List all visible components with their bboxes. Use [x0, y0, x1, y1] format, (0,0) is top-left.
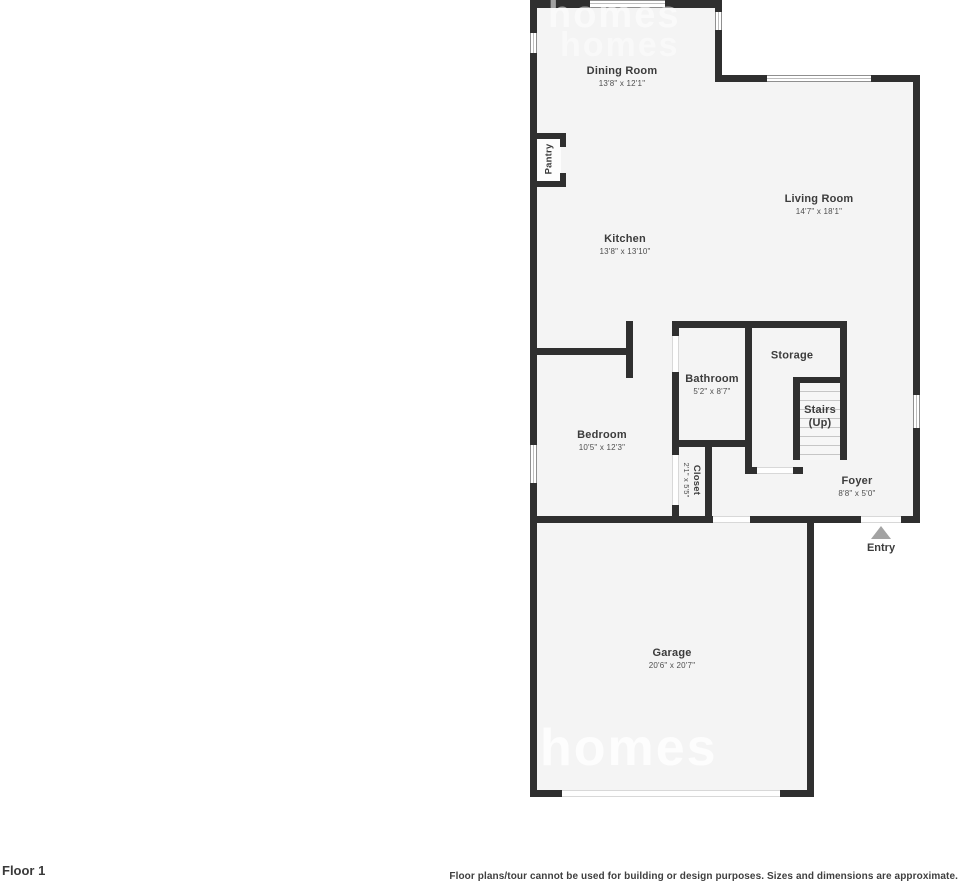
- room-dims: 2'1" x 5'5": [682, 463, 691, 498]
- floor-title: Floor 1: [2, 863, 45, 878]
- wall: [530, 790, 562, 797]
- wall: [793, 383, 800, 460]
- wall: [679, 321, 847, 328]
- door-opening: [713, 516, 750, 523]
- wall: [530, 523, 537, 797]
- room-label-foyer: Foyer 8'8" x 5'0": [838, 475, 875, 499]
- wall: [537, 348, 628, 355]
- wall: [745, 467, 757, 474]
- wall: [530, 483, 537, 523]
- wall: [901, 516, 920, 523]
- room-label-bathroom: Bathroom 5'2" x 8'7": [685, 373, 739, 397]
- window: [530, 445, 537, 483]
- room-label-garage: Garage 20'6" x 20'7": [649, 647, 695, 671]
- room-label-kitchen: Kitchen 13'8" x 13'10": [599, 233, 650, 257]
- wall: [807, 523, 814, 797]
- door-opening: [672, 455, 679, 505]
- wall: [530, 53, 537, 445]
- room-name: Foyer: [838, 475, 875, 488]
- wall: [780, 790, 814, 797]
- wall: [679, 440, 745, 447]
- door-opening: [861, 516, 901, 523]
- entry-label: Entry: [867, 542, 895, 554]
- room-label-living-room: Living Room 14'7" x 18'1": [785, 193, 854, 217]
- door-opening: [757, 467, 793, 474]
- room-label-closet: Closet 2'1" x 5'5": [682, 463, 702, 498]
- window: [715, 12, 722, 30]
- room-name: Bathroom: [685, 373, 739, 386]
- wall: [672, 372, 679, 443]
- window: [590, 0, 665, 8]
- entry-arrow-icon: [871, 526, 891, 539]
- room-label-storage: Storage: [771, 350, 813, 363]
- room-label-bedroom: Bedroom 10'5" x 12'3": [577, 429, 627, 453]
- room-name: Storage: [771, 350, 813, 363]
- wall: [560, 139, 566, 147]
- room-label-stairs: Stairs (Up): [804, 404, 836, 430]
- window: [767, 75, 871, 82]
- wall: [665, 0, 722, 8]
- room-dims: 5'2" x 8'7": [685, 386, 739, 397]
- wall: [750, 516, 861, 523]
- wall: [530, 8, 537, 33]
- room-label-dining-room: Dining Room 13'8" x 12'1": [587, 65, 658, 89]
- room-name: Garage: [649, 647, 695, 660]
- room-name: Living Room: [785, 193, 854, 206]
- wall: [530, 0, 590, 8]
- disclaimer-text: Floor plans/tour cannot be used for buil…: [449, 871, 958, 882]
- room-name: Stairs: [804, 404, 836, 417]
- wall: [793, 377, 840, 383]
- room-sub-label: (Up): [804, 417, 836, 430]
- wall: [840, 328, 847, 460]
- room-name: Closet: [691, 463, 702, 498]
- room-dims: 14'7" x 18'1": [785, 206, 854, 217]
- wall: [715, 0, 722, 12]
- room-dims: 20'6" x 20'7": [649, 660, 695, 671]
- door-opening: [562, 790, 780, 797]
- room-name: Kitchen: [599, 233, 650, 246]
- window: [913, 395, 920, 428]
- wall: [672, 321, 679, 336]
- wall: [672, 505, 679, 516]
- room-dims: 13'8" x 13'10": [599, 246, 650, 257]
- wall: [913, 428, 920, 523]
- room-dims: 8'8" x 5'0": [838, 488, 875, 499]
- room-label-pantry: Pantry: [544, 144, 555, 175]
- wall: [745, 328, 752, 474]
- wall: [871, 75, 920, 82]
- wall: [560, 173, 566, 181]
- wall: [705, 447, 712, 516]
- room-dims: 13'8" x 12'1": [587, 78, 658, 89]
- floor-plan-page: homes homes homes Dining Room 13'8" x 12…: [0, 0, 959, 893]
- floor-plan: homes homes homes Dining Room 13'8" x 12…: [0, 0, 959, 893]
- wall: [913, 82, 920, 395]
- room-dims: 10'5" x 12'3": [577, 442, 627, 453]
- room-name: Dining Room: [587, 65, 658, 78]
- wall: [793, 467, 803, 474]
- window: [530, 33, 537, 53]
- wall: [715, 75, 767, 82]
- wall: [533, 181, 566, 187]
- wall: [537, 516, 713, 523]
- door-opening: [672, 336, 679, 372]
- wall: [672, 443, 679, 455]
- room-name: Bedroom: [577, 429, 627, 442]
- room-name: Pantry: [544, 144, 555, 175]
- wall: [626, 321, 633, 378]
